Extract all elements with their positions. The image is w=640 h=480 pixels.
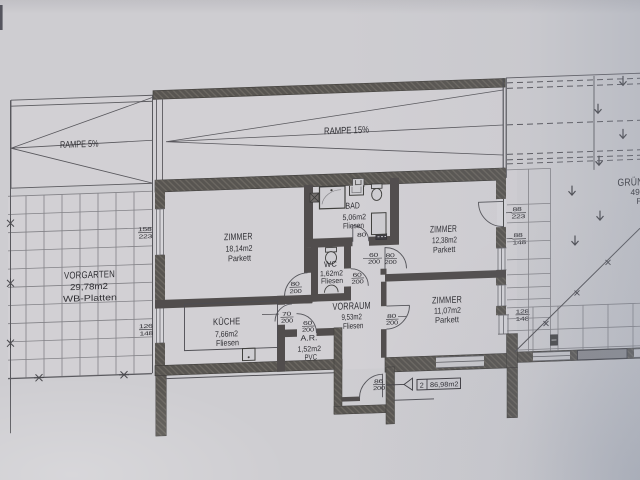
svg-text:200: 200 — [290, 289, 302, 295]
svg-text:223: 223 — [139, 234, 153, 240]
svg-text:ZIMMER: ZIMMER — [224, 230, 253, 242]
svg-text:Parkett: Parkett — [228, 253, 252, 264]
svg-text:29,78m2: 29,78m2 — [70, 281, 108, 292]
svg-text:RAMPE 5%: RAMPE 5% — [60, 139, 99, 151]
